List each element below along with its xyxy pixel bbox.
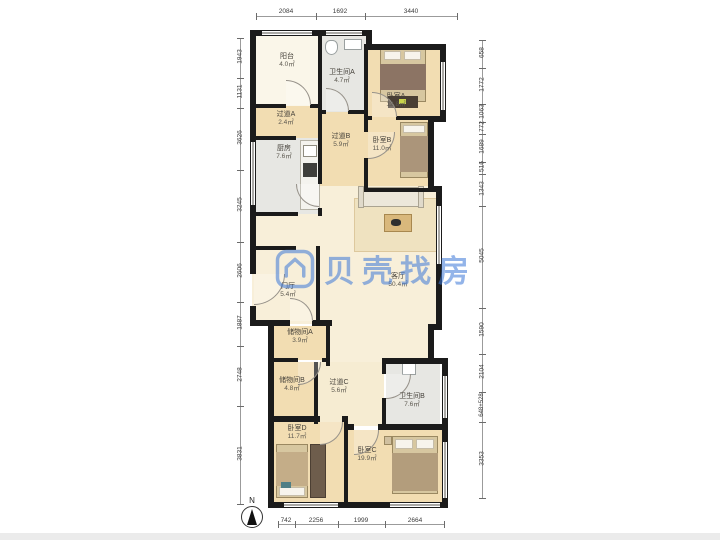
wall bbox=[436, 186, 442, 206]
window bbox=[284, 502, 338, 508]
compass-dial bbox=[241, 506, 263, 528]
pillow bbox=[416, 439, 434, 449]
dim-label: 3353 bbox=[479, 439, 486, 479]
wall bbox=[396, 116, 432, 120]
wall bbox=[382, 358, 432, 364]
room-area: 12.8㎡ bbox=[368, 101, 424, 109]
dim-tick bbox=[256, 13, 257, 20]
dim-tick bbox=[237, 242, 244, 243]
blanket bbox=[392, 453, 438, 491]
wall bbox=[378, 424, 386, 430]
floor-plan: 阳台 4.0㎡ 过道A 2.4㎡ 卫生间A 4.7㎡ 卧室A 12.8㎡ 厨房 … bbox=[0, 0, 720, 540]
room-area: 2.4㎡ bbox=[258, 119, 314, 127]
wall bbox=[268, 358, 298, 362]
room-name: 卫生间B bbox=[384, 392, 440, 401]
window bbox=[442, 376, 448, 418]
dim-label: 3831 bbox=[237, 434, 244, 474]
dim-tick bbox=[338, 521, 339, 528]
wall bbox=[428, 116, 434, 192]
room-name: 厨房 bbox=[256, 144, 312, 153]
table-decor bbox=[391, 219, 401, 226]
compass-north-label: N bbox=[238, 497, 266, 505]
room-name: 卧室D bbox=[269, 424, 325, 433]
bottom-bar bbox=[0, 533, 720, 540]
room-area: 7.6㎡ bbox=[256, 153, 312, 161]
room-name: 过道A bbox=[258, 110, 314, 119]
wall bbox=[364, 116, 368, 132]
window bbox=[262, 30, 312, 36]
dim-label: 3440 bbox=[391, 8, 431, 15]
room-name: 储物间A bbox=[272, 328, 328, 337]
dim-label: 1887 bbox=[237, 303, 244, 343]
dim-tick bbox=[444, 521, 445, 528]
wall bbox=[268, 502, 284, 508]
room-area: 11.0㎡ bbox=[354, 145, 410, 153]
room-area: 19.9㎡ bbox=[339, 455, 395, 463]
dim-label: 3245 bbox=[237, 185, 244, 225]
wall bbox=[318, 208, 322, 216]
dim-label: 648+528 bbox=[479, 385, 485, 425]
watermark-text: 贝壳找房 bbox=[324, 246, 476, 291]
dim-label: 2664 bbox=[395, 517, 435, 524]
kitchen-stove bbox=[303, 163, 317, 177]
dim-tick bbox=[385, 521, 386, 528]
wall bbox=[250, 30, 256, 142]
room-label-bedroom-d: 卧室D 11.7㎡ bbox=[269, 424, 325, 442]
wall bbox=[440, 44, 446, 62]
dim-line-bottom bbox=[278, 524, 445, 525]
wall bbox=[250, 104, 286, 108]
wall bbox=[250, 320, 290, 326]
compass-needle-icon bbox=[247, 509, 257, 525]
wall bbox=[268, 320, 274, 508]
window bbox=[390, 502, 440, 508]
wall bbox=[382, 424, 444, 430]
toilet bbox=[325, 40, 338, 55]
wall bbox=[310, 104, 322, 108]
window bbox=[440, 62, 446, 110]
window bbox=[442, 442, 448, 498]
wall bbox=[442, 498, 448, 508]
room-name: 卧室B bbox=[354, 136, 410, 145]
wall bbox=[322, 358, 330, 362]
wall bbox=[344, 424, 354, 430]
room-label-hallway-c: 过道C 5.6㎡ bbox=[311, 378, 367, 396]
dim-label: 1999 bbox=[341, 517, 381, 524]
dim-tick bbox=[316, 13, 317, 20]
room-area: 5.4㎡ bbox=[260, 291, 316, 299]
dim-label: 1943 bbox=[237, 37, 244, 77]
wall bbox=[250, 212, 298, 216]
room-area: 7.6㎡ bbox=[384, 401, 440, 409]
room-label-bath-b: 卫生间B 7.6㎡ bbox=[384, 392, 440, 410]
room-label-bedroom-c: 卧室C 19.9㎡ bbox=[339, 446, 395, 464]
wall bbox=[366, 44, 446, 50]
room-area: 4.7㎡ bbox=[314, 77, 370, 85]
dim-tick bbox=[479, 498, 486, 499]
dim-label: 2748 bbox=[237, 355, 244, 395]
room-label-bedroom-a: 卧室A 12.8㎡ bbox=[368, 92, 424, 110]
room-name: 卧室C bbox=[339, 446, 395, 455]
room-area: 3.9㎡ bbox=[272, 337, 328, 345]
wall bbox=[442, 358, 448, 376]
room-area: 4.0㎡ bbox=[259, 61, 315, 69]
dim-label: 1590 bbox=[479, 310, 486, 350]
dim-label: 5045 bbox=[479, 236, 486, 276]
watermark: 贝壳找房 bbox=[274, 246, 476, 291]
room-name: 阳台 bbox=[259, 52, 315, 61]
dim-label: 1692 bbox=[320, 8, 360, 15]
room-name: 过道C bbox=[311, 378, 367, 387]
dim-label: 3626 bbox=[237, 118, 244, 158]
blanket bbox=[276, 452, 308, 486]
pillow bbox=[279, 487, 305, 496]
room-label-bath-a: 卫生间A 4.7㎡ bbox=[314, 68, 370, 86]
wall bbox=[364, 158, 368, 192]
pillow bbox=[384, 51, 401, 60]
dim-tick bbox=[237, 406, 244, 407]
compass: N bbox=[238, 497, 266, 528]
room-label-kitchen: 厨房 7.6㎡ bbox=[256, 144, 312, 162]
dim-label: 2084 bbox=[266, 8, 306, 15]
window bbox=[326, 30, 362, 36]
dim-tick bbox=[237, 346, 244, 347]
nightstand bbox=[384, 436, 392, 445]
dim-tick bbox=[365, 13, 366, 20]
wall bbox=[268, 416, 320, 422]
room-name: 卫生间A bbox=[314, 68, 370, 77]
wall bbox=[364, 188, 432, 192]
pillow bbox=[395, 439, 413, 449]
dim-label: 1131 bbox=[237, 72, 244, 112]
room-label-hallway-a: 过道A 2.4㎡ bbox=[258, 110, 314, 128]
wardrobe bbox=[310, 444, 326, 498]
room-label-bedroom-b: 卧室B 11.0㎡ bbox=[354, 136, 410, 154]
room-name: 卧室A bbox=[368, 92, 424, 101]
dim-label: 2606 bbox=[237, 251, 244, 291]
blanket bbox=[380, 64, 426, 90]
room-label-balcony: 阳台 4.0㎡ bbox=[259, 52, 315, 70]
beike-logo-icon bbox=[274, 248, 316, 290]
room-area: 5.6㎡ bbox=[311, 387, 367, 395]
room-label-storage-a: 储物间A 3.9㎡ bbox=[272, 328, 328, 346]
dim-label: 1343 bbox=[479, 169, 486, 209]
dim-label: 2256 bbox=[296, 517, 336, 524]
wall bbox=[250, 136, 296, 140]
dim-tick bbox=[457, 13, 458, 20]
dim-line-top bbox=[256, 16, 458, 17]
pillow bbox=[403, 125, 425, 133]
room-area: 11.7㎡ bbox=[269, 433, 325, 441]
pillow-accent bbox=[281, 482, 291, 488]
bathroom-sink bbox=[344, 39, 362, 50]
pillow bbox=[404, 51, 421, 60]
dim-tick bbox=[237, 170, 244, 171]
